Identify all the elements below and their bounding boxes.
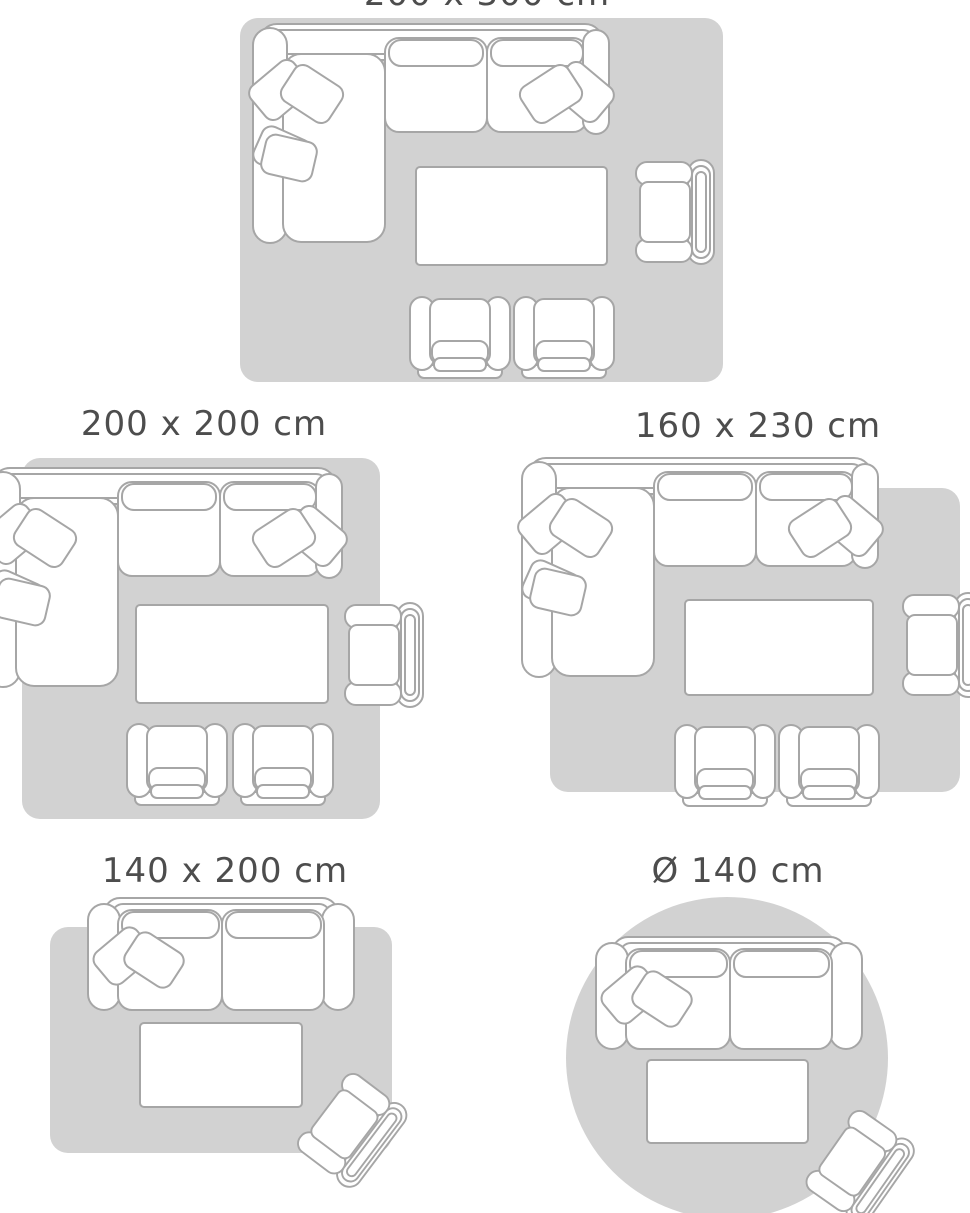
loveseat-sofa-icon — [596, 937, 862, 1049]
size-label-140x200: 140 x 200 cm — [102, 854, 348, 888]
chair-icon — [127, 724, 227, 805]
chair-icon — [514, 297, 614, 378]
coffee-table-icon — [140, 1023, 302, 1107]
chair-icon — [675, 725, 775, 806]
coffee-table-icon — [685, 600, 873, 695]
panel-160x230 — [514, 458, 970, 806]
chair-icon — [410, 297, 510, 378]
coffee-table-icon — [647, 1060, 808, 1143]
chair-icon — [233, 724, 333, 805]
size-label-160x230: 160 x 230 cm — [635, 409, 881, 443]
armchair-icon — [345, 603, 423, 707]
size-label-200x300: 200 x 300 cm — [364, 0, 610, 11]
armchair-icon — [903, 593, 970, 697]
coffee-table-icon — [416, 167, 607, 265]
panel-140x200 — [50, 898, 411, 1192]
rug-size-guide-diagram — [0, 0, 970, 1213]
armchair-icon — [636, 160, 714, 264]
panel-200x300 — [240, 18, 723, 382]
panel-200x200 — [0, 458, 423, 819]
loveseat-sofa-icon — [88, 898, 354, 1010]
chair-icon — [779, 725, 879, 806]
size-label-200x200: 200 x 200 cm — [81, 407, 327, 441]
panel-round-140 — [566, 897, 919, 1213]
rug-size-guide: 200 x 300 cm 200 x 200 cm 160 x 230 cm 1… — [0, 0, 970, 1213]
coffee-table-icon — [136, 605, 328, 703]
size-label-round-140: Ø 140 cm — [651, 854, 824, 888]
